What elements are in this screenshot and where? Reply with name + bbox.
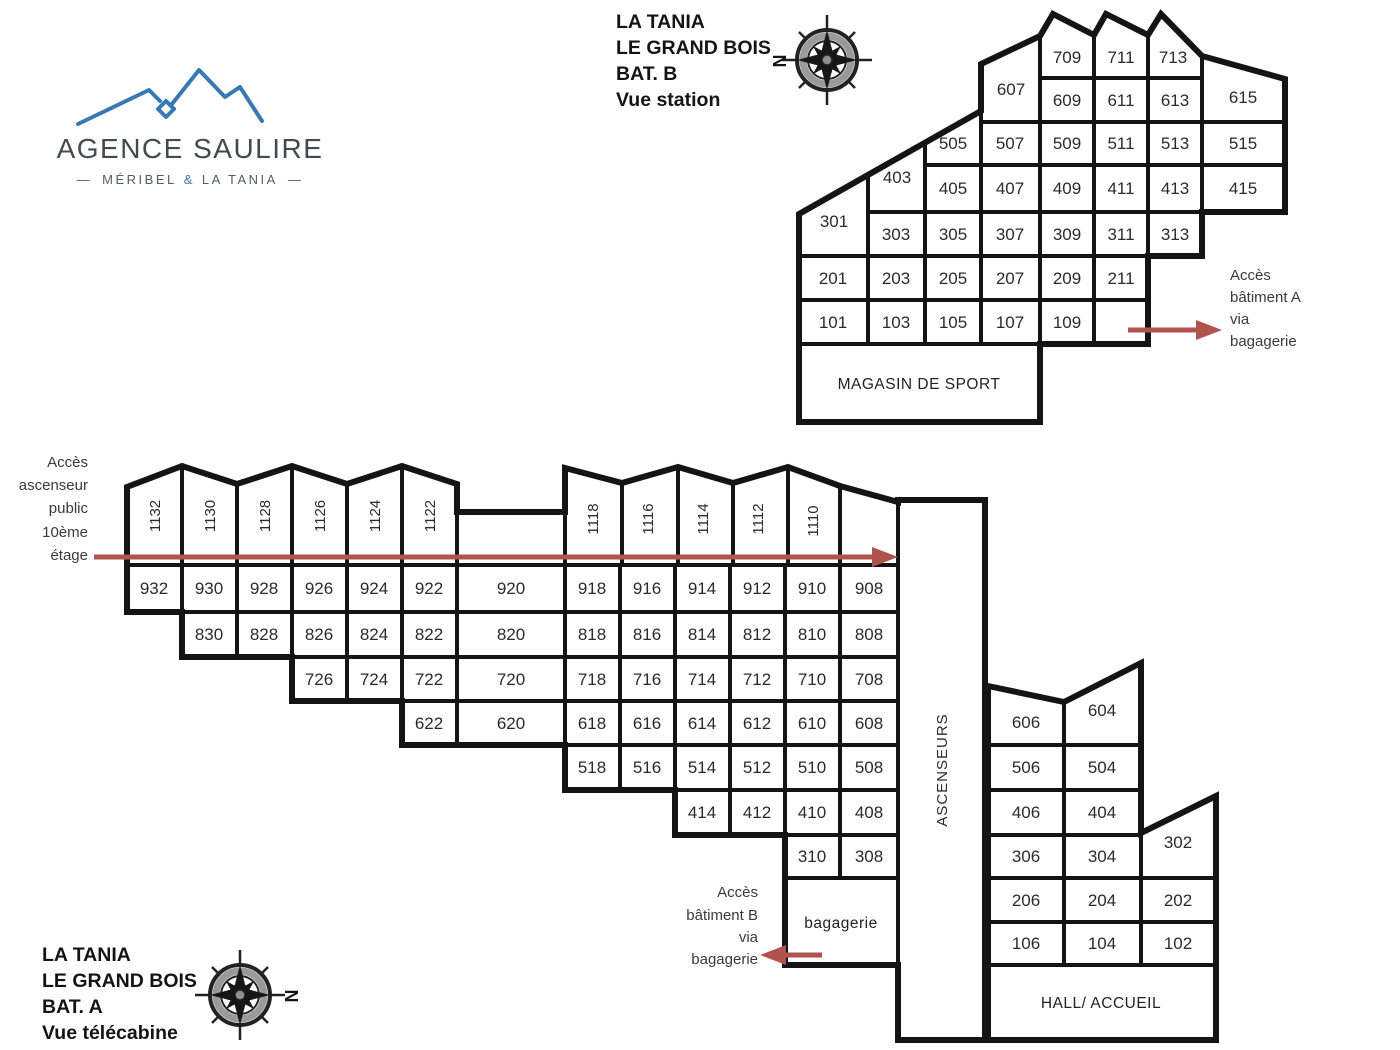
unit-920-label: 920 — [497, 579, 525, 598]
unit-201-label: 201 — [819, 269, 847, 288]
acces-b-line2: bâtiment B — [686, 907, 758, 924]
unit-408-label: 408 — [855, 803, 883, 822]
unit-926-label: 926 — [305, 579, 333, 598]
unit-916-label: 916 — [633, 579, 661, 598]
unit-608-label: 608 — [855, 714, 883, 733]
unit-718-label: 718 — [578, 670, 606, 689]
unit-513-label: 513 — [1161, 134, 1189, 153]
unit-407-label: 407 — [996, 179, 1024, 198]
unit-101-label: 101 — [819, 313, 847, 332]
building-b-title: LA TANIA LE GRAND BOIS BAT. B Vue statio… — [616, 11, 771, 111]
mountain-icon — [78, 90, 160, 124]
unit-620-label: 620 — [497, 714, 525, 733]
compass-a-north-letter: N — [281, 990, 301, 1003]
unit-403-label: 403 — [883, 168, 911, 187]
unit-818-label: 818 — [578, 625, 606, 644]
unit-720-label: 720 — [497, 670, 525, 689]
unit-204-label: 204 — [1088, 891, 1116, 910]
unit-1124-label: 1124 — [367, 500, 384, 532]
unit-826-label: 826 — [305, 625, 333, 644]
unit-606-label: 606 — [1012, 713, 1040, 732]
unit-304-label: 304 — [1088, 847, 1116, 866]
unit-708-label: 708 — [855, 670, 883, 689]
agency-tagline: —MÉRIBEL&LA TANIA— — [77, 172, 304, 187]
agency-logo: AGENCE SAULIRE —MÉRIBEL&LA TANIA— — [57, 70, 324, 187]
acces-asc-line3: public — [49, 500, 89, 517]
unit-516-label: 516 — [633, 758, 661, 777]
unit-722-label: 722 — [415, 670, 443, 689]
unit-102-label: 102 — [1164, 934, 1192, 953]
unit-512-label: 512 — [743, 758, 771, 777]
acces-a-line1: Accès — [1230, 267, 1271, 284]
unit-109-label: 109 — [1053, 313, 1081, 332]
unit-614-label: 614 — [688, 714, 716, 733]
title-b-line1: LA TANIA — [616, 11, 705, 33]
acces-asc-line2: ascenseur — [19, 477, 88, 494]
unit-510-label: 510 — [798, 758, 826, 777]
compass-rose-a: N — [195, 950, 301, 1040]
unit-816-label: 816 — [633, 625, 661, 644]
unit-106-label: 106 — [1012, 934, 1040, 953]
unit-414-label: 414 — [688, 803, 716, 822]
building-a-title: LA TANIA LE GRAND BOIS BAT. A Vue téléca… — [42, 944, 197, 1044]
compass-b-north-letter: N — [769, 55, 789, 68]
unit-313-label: 313 — [1161, 225, 1189, 244]
floorplan-svg: AGENCE SAULIRE —MÉRIBEL&LA TANIA— LA TAN… — [0, 0, 1400, 1050]
unit-616-label: 616 — [633, 714, 661, 733]
right-arrow-icon — [1196, 320, 1222, 340]
unit-828-label: 828 — [250, 625, 278, 644]
unit-103-label: 103 — [882, 313, 910, 332]
unit-914-label: 914 — [688, 579, 716, 598]
unit-1122-label: 1122 — [422, 500, 439, 532]
unit-207-label: 207 — [996, 269, 1024, 288]
unit-309-label: 309 — [1053, 225, 1081, 244]
title-a-line3: BAT. A — [42, 996, 103, 1018]
unit-710-label: 710 — [798, 670, 826, 689]
unit-405-label: 405 — [939, 179, 967, 198]
unit-613-label: 613 — [1161, 91, 1189, 110]
unit-504-label: 504 — [1088, 758, 1116, 777]
compass-rose-b: N — [769, 15, 872, 105]
unit-1118-label: 1118 — [585, 503, 602, 534]
unit-307-label: 307 — [996, 225, 1024, 244]
unit-104-label: 104 — [1088, 934, 1116, 953]
unit-202-label: 202 — [1164, 891, 1192, 910]
access-batiment-a-arrow: Accès bâtiment A via bagagerie — [1128, 267, 1301, 350]
unit-305-label: 305 — [939, 225, 967, 244]
unit-712-label: 712 — [743, 670, 771, 689]
unit-820-label: 820 — [497, 625, 525, 644]
unit-409-label: 409 — [1053, 179, 1081, 198]
unit-507-label: 507 — [996, 134, 1024, 153]
unit-107-label: 107 — [996, 313, 1024, 332]
unit-611-label: 611 — [1107, 91, 1134, 110]
acces-asc-line1: Accès — [47, 454, 88, 471]
unit-205-label: 205 — [939, 269, 967, 288]
unit-411-label: 411 — [1107, 179, 1134, 198]
unit-1130-label: 1130 — [202, 500, 219, 532]
unit-908-label: 908 — [855, 579, 883, 598]
unit-724-label: 724 — [360, 670, 388, 689]
magasin-label: MAGASIN DE SPORT — [838, 376, 1001, 393]
title-b-line3: BAT. B — [616, 63, 677, 85]
ascenseurs-label: ASCENSEURS — [934, 713, 951, 826]
unit-308-label: 308 — [855, 847, 883, 866]
unit-824-label: 824 — [360, 625, 388, 644]
unit-1110-label: 1110 — [805, 505, 822, 536]
acces-a-line4: bagagerie — [1230, 333, 1297, 350]
unit-406-label: 406 — [1012, 803, 1040, 822]
building-a: 1132 1130 1128 1126 1124 1122 1118 1116 … — [127, 466, 1216, 1040]
unit-518-label: 518 — [578, 758, 606, 777]
unit-607-label: 607 — [997, 80, 1025, 99]
unit-515-label: 515 — [1229, 134, 1257, 153]
floorplan-page: AGENCE SAULIRE —MÉRIBEL&LA TANIA— LA TAN… — [0, 0, 1400, 1050]
unit-713-label: 713 — [1159, 48, 1187, 67]
unit-726-label: 726 — [305, 670, 333, 689]
title-a-line4: Vue télécabine — [42, 1022, 178, 1044]
acces-a-line3: via — [1230, 311, 1250, 328]
title-b-line4: Vue station — [616, 89, 720, 111]
unit-211-label: 211 — [1107, 269, 1134, 288]
unit-410-label: 410 — [798, 803, 826, 822]
unit-413-label: 413 — [1161, 179, 1189, 198]
unit-415-label: 415 — [1229, 179, 1257, 198]
unit-714-label: 714 — [688, 670, 716, 689]
unit-810-label: 810 — [798, 625, 826, 644]
left-arrow-icon — [760, 945, 786, 965]
bagagerie-label: bagagerie — [804, 915, 877, 932]
unit-203-label: 203 — [882, 269, 910, 288]
unit-928-label: 928 — [250, 579, 278, 598]
acces-asc-line5: étage — [50, 547, 88, 564]
unit-610-label: 610 — [798, 714, 826, 733]
unit-922-label: 922 — [415, 579, 443, 598]
unlabeled-cell-b — [1094, 300, 1148, 344]
unit-311-label: 311 — [1107, 225, 1134, 244]
unit-932-label: 932 — [140, 579, 168, 598]
unit-412-label: 412 — [743, 803, 771, 822]
unit-506-label: 506 — [1012, 758, 1040, 777]
unit-105-label: 105 — [939, 313, 967, 332]
unit-711-label: 711 — [1107, 48, 1134, 67]
unit-822-label: 822 — [415, 625, 443, 644]
hall-accueil-label: HALL/ ACCUEIL — [1041, 995, 1161, 1012]
unit-508-label: 508 — [855, 758, 883, 777]
unit-1116-label: 1116 — [640, 503, 657, 534]
unit-209-label: 209 — [1053, 269, 1081, 288]
unit-609-label: 609 — [1053, 91, 1081, 110]
unit-1114-label: 1114 — [695, 503, 712, 534]
agency-name: AGENCE SAULIRE — [57, 133, 324, 164]
unit-709-label: 709 — [1053, 48, 1081, 67]
unit-812-label: 812 — [743, 625, 771, 644]
compass-b-icon — [782, 15, 872, 105]
compass-a-icon — [195, 950, 285, 1040]
unit-918-label: 918 — [578, 579, 606, 598]
unit-622-label: 622 — [415, 714, 443, 733]
title-b-line2: LE GRAND BOIS — [616, 37, 771, 59]
unit-1126-label: 1126 — [312, 500, 329, 532]
unit-814-label: 814 — [688, 625, 716, 644]
title-a-line2: LE GRAND BOIS — [42, 970, 197, 992]
unit-302-label: 302 — [1164, 833, 1192, 852]
unit-1112-label: 1112 — [750, 503, 767, 534]
unit-509-label: 509 — [1053, 134, 1081, 153]
unit-1128-label: 1128 — [257, 500, 274, 532]
unit-615-label: 615 — [1229, 88, 1257, 107]
unit-808-label: 808 — [855, 625, 883, 644]
unit-310-label: 310 — [798, 847, 826, 866]
acces-b-line3: via — [739, 929, 759, 946]
acces-b-line1: Accès — [717, 884, 758, 901]
unit-1132-label: 1132 — [147, 500, 164, 532]
unit-301-label: 301 — [820, 212, 848, 231]
unit-604-label: 604 — [1088, 701, 1116, 720]
unit-930-label: 930 — [195, 579, 223, 598]
unit-924-label: 924 — [360, 579, 388, 598]
title-a-line1: LA TANIA — [42, 944, 131, 966]
acces-b-line4: bagagerie — [691, 951, 758, 968]
unit-514-label: 514 — [688, 758, 716, 777]
unit-206-label: 206 — [1012, 891, 1040, 910]
mountain-peak-icon — [172, 70, 262, 121]
unit-612-label: 612 — [743, 714, 771, 733]
building-b: 301 403 505 607 709 711 713 615 609 611 … — [799, 14, 1285, 422]
unit-306-label: 306 — [1012, 847, 1040, 866]
unit-618-label: 618 — [578, 714, 606, 733]
unit-505-label: 505 — [939, 134, 967, 153]
unit-912-label: 912 — [743, 579, 771, 598]
unit-910-label: 910 — [798, 579, 826, 598]
unit-830-label: 830 — [195, 625, 223, 644]
acces-asc-line4: 10ème — [42, 524, 88, 541]
acces-a-line2: bâtiment A — [1230, 289, 1301, 306]
unit-404-label: 404 — [1088, 803, 1116, 822]
unit-716-label: 716 — [633, 670, 661, 689]
unit-511-label: 511 — [1107, 134, 1134, 153]
unit-303-label: 303 — [882, 225, 910, 244]
